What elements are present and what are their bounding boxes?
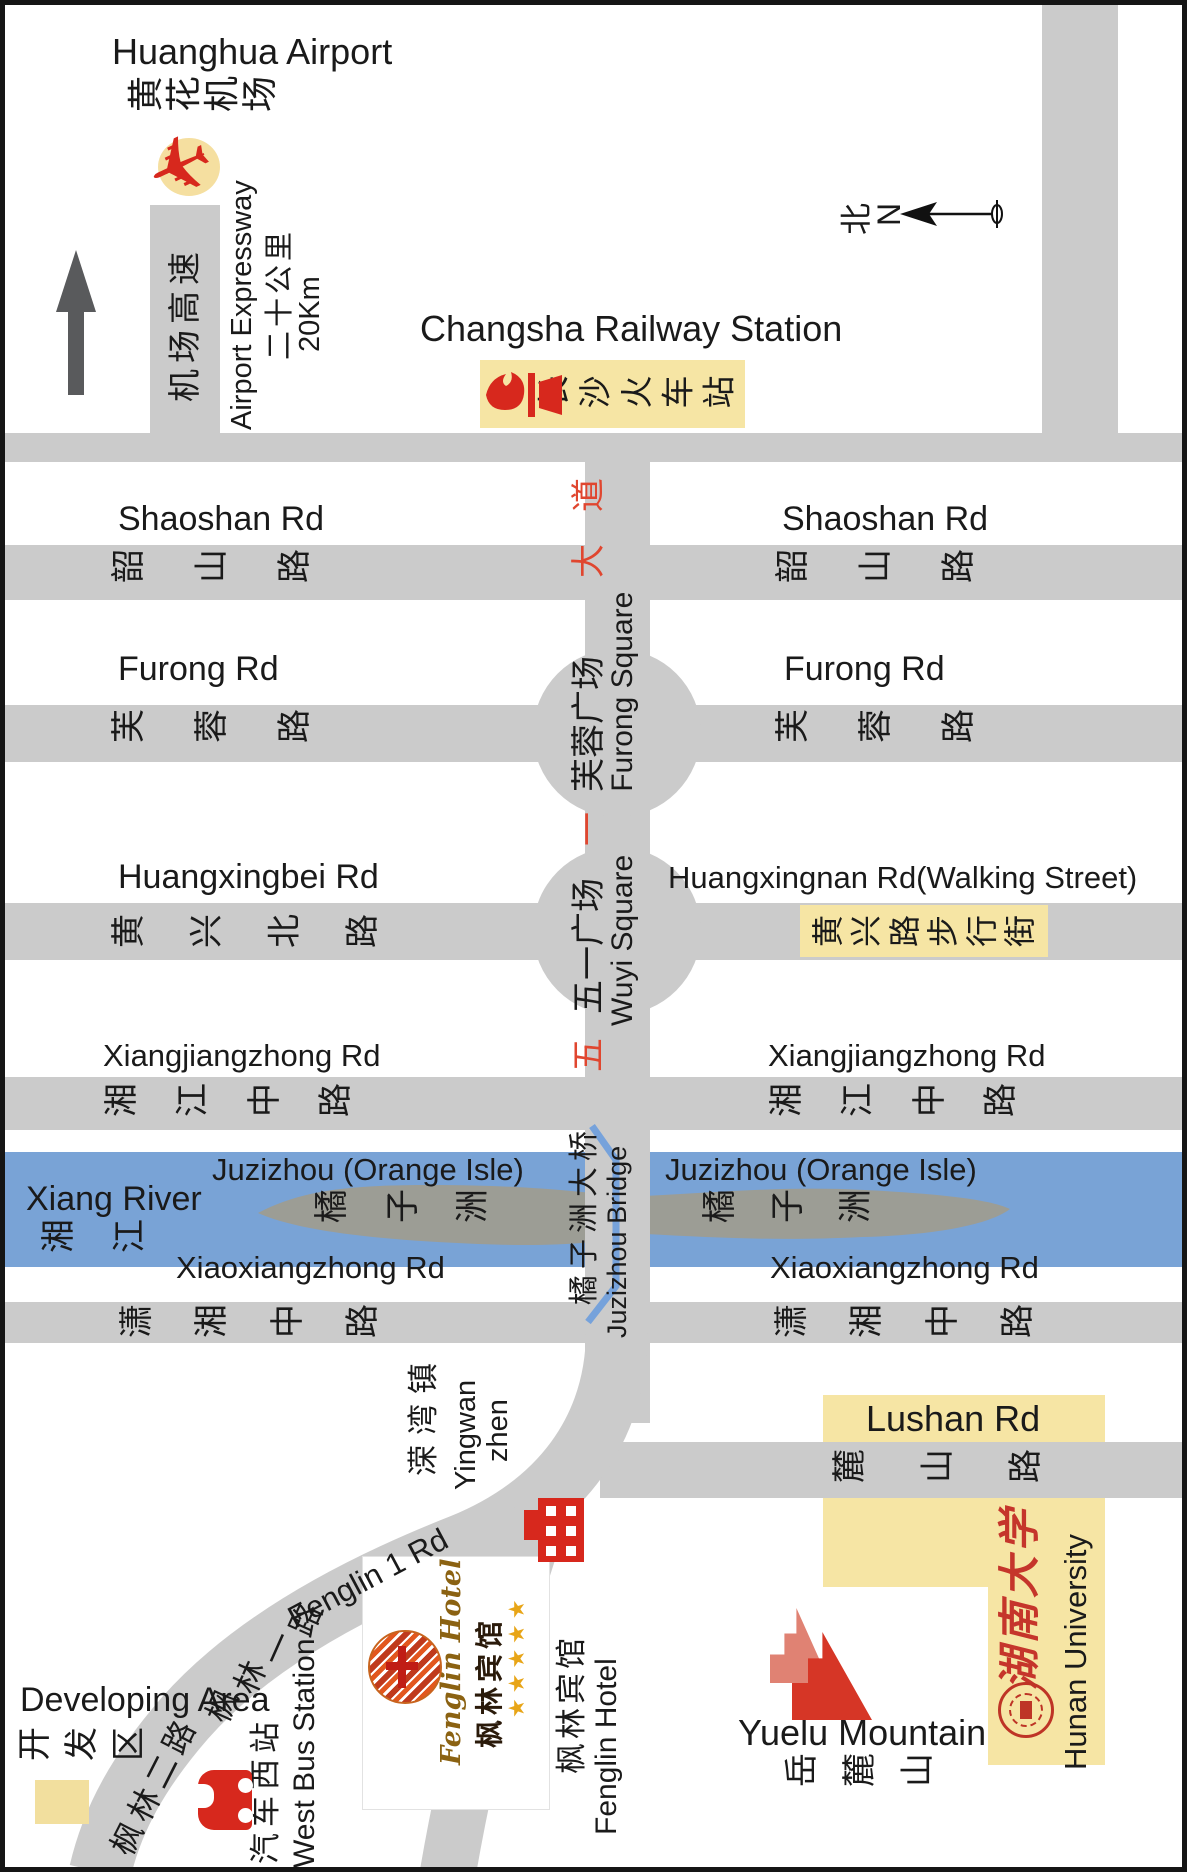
airport-label-en: Huanghua Airport	[112, 31, 392, 73]
furong-square-cn: 芙蓉广场	[570, 656, 608, 792]
fenglin-hotel-label-cn: 枫林宾馆	[554, 1634, 590, 1774]
railway-station-label-cn: 长沙火车站	[538, 372, 736, 412]
hotel-building-icon	[524, 1490, 586, 1570]
railway-station-label-en: Changsha Railway Station	[420, 308, 842, 350]
north-arrow-icon	[900, 200, 1002, 228]
hunan-university-cn: 湖南大学	[996, 1506, 1044, 1690]
west-bus-station-cn: 汽车西站	[248, 1716, 284, 1864]
xiaoxiangzhong-rd-right-en: Xiaoxiangzhong Rd	[770, 1250, 1039, 1286]
fenglin-logo-stars: ★★★★★	[504, 1594, 529, 1718]
yingwan-zhen-en-line2: zhen	[482, 1399, 515, 1462]
university-seal-icon	[998, 1682, 1054, 1738]
airport-expressway-en: Airport Expressway	[226, 180, 259, 430]
xiangjiangzhong-rd-right-cn: 湘江中路	[770, 1080, 1018, 1120]
xiangjiangzhong-rd-left-cn: 湘江中路	[105, 1080, 353, 1120]
juzizhou-bridge-en: Juzizhou Bridge	[602, 1146, 633, 1338]
west-bus-station-en: West Bus Station	[288, 1638, 323, 1868]
huangxingnan-rd-en: Huangxingnan Rd(Walking Street)	[668, 860, 1137, 896]
fenglin-logo-cn: 枫林宾馆	[474, 1616, 506, 1748]
xiang-river-en: Xiang River	[26, 1180, 202, 1219]
airport-distance-en: 20Km	[294, 276, 327, 352]
xiaoxiangzhong-rd-left-cn: 潇湘中路	[120, 1301, 380, 1341]
shaoshan-rd-right-cn: 韶山路	[776, 546, 976, 586]
wuyi-avenue-column-cn: 五五一广场一芙蓉广场大道	[570, 478, 609, 1072]
avenue-char-da: 大	[570, 544, 608, 578]
bus-icon	[198, 1770, 252, 1830]
wuyi-square-en: Wuyi Square	[606, 855, 639, 1026]
airport-distance-cn: 二十公里	[264, 228, 297, 360]
compass-north-cn: 北	[838, 196, 870, 242]
juzizhou-left-cn: 橘子洲	[315, 1186, 490, 1226]
furong-rd-right-en: Furong Rd	[784, 650, 945, 689]
airport-expressway-cn: 机场高速	[166, 246, 204, 402]
airport-label-cn: 黄花机场	[128, 74, 278, 114]
furong-rd-right-cn: 芙蓉路	[776, 706, 976, 746]
avenue-char-wu: 五	[570, 1038, 608, 1072]
juzizhou-left-en: Juzizhou (Orange Isle)	[212, 1152, 524, 1188]
up-arrow-icon	[56, 250, 96, 395]
xiangjiangzhong-rd-left-en: Xiangjiangzhong Rd	[103, 1038, 381, 1074]
juzizhou-right-en: Juzizhou (Orange Isle)	[665, 1152, 977, 1188]
avenue-char-dao: 道	[570, 478, 608, 512]
shaoshan-rd-left-en: Shaoshan Rd	[118, 500, 324, 539]
wuyi-avenue-column-en: Wuyi SquareFurong Square	[606, 592, 641, 1026]
xiangjiangzhong-rd-right-en: Xiangjiangzhong Rd	[768, 1038, 1046, 1074]
xiaoxiangzhong-rd-right-cn: 潇湘中路	[775, 1301, 1035, 1341]
fenglin-hotel-label-en: Fenglin Hotel	[590, 1658, 625, 1835]
yuelu-mountain-cn: 岳麓山	[785, 1750, 935, 1790]
developing-area-cn: 开发区	[18, 1724, 146, 1764]
northeast-road-shape	[1042, 5, 1118, 437]
furong-square-en: Furong Square	[606, 592, 639, 792]
juzizhou-right-cn: 橘子洲	[703, 1186, 873, 1226]
xiaoxiangzhong-rd-left-en: Xiaoxiangzhong Rd	[176, 1250, 445, 1286]
lushan-rd-en: Lushan Rd	[866, 1398, 1040, 1440]
huangxingbei-rd-cn: 黄兴北路	[112, 911, 380, 951]
compass-north-en: N	[878, 196, 901, 233]
walking-street-cn: 黄兴路步行街	[812, 911, 1036, 951]
lushan-rd-cn: 麓山路	[833, 1446, 1043, 1486]
developing-area-legend-swatch	[35, 1780, 89, 1824]
yingwan-zhen-cn: 溁湾镇	[406, 1353, 442, 1476]
avenue-char-yi: 一	[570, 812, 608, 846]
changsha-location-map: Huanghua Airport 黄花机场 ✈ 机场高速 Airport Exp…	[0, 0, 1187, 1872]
shaoshan-rd-right-en: Shaoshan Rd	[782, 500, 988, 539]
shaoshan-rd-left-cn: 韶山路	[112, 546, 312, 586]
yingwan-zhen-en-line1: Yingwan	[450, 1380, 483, 1490]
railway-station-torch-icon	[484, 370, 566, 420]
hunan-university-en: Hunan University	[1058, 1534, 1094, 1770]
furong-rd-left-en: Furong Rd	[118, 650, 279, 689]
xiang-river-cn: 湘江	[42, 1216, 147, 1256]
wuyi-square-cn: 五一广场	[570, 878, 608, 1014]
furong-rd-left-cn: 芙蓉路	[112, 706, 312, 746]
juzizhou-bridge-cn: 橘子洲大桥	[568, 1125, 603, 1305]
huangxingbei-rd-en: Huangxingbei Rd	[118, 858, 379, 897]
fenglin-logo-emblem-icon	[368, 1630, 442, 1704]
